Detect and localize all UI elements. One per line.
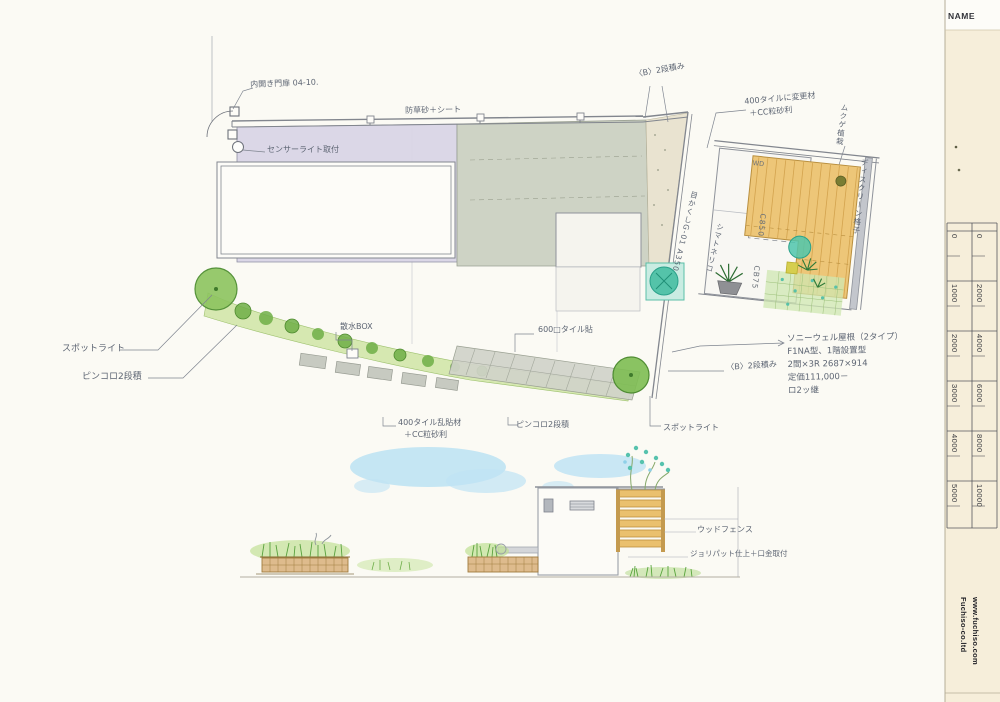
pen-speck [955,146,958,149]
ruler-left-1000: 1000 [950,284,959,303]
tile-600-label: 600□タイル貼 [538,325,593,334]
sensor-light-label: センサーライト取付 [267,145,339,154]
tile-400-label-line2: ＋CC粒砂利 [404,430,447,439]
entry-approach [556,267,640,311]
ruler-left-2000: 2000 [950,334,959,353]
tile-400-label-line1: 400タイル乱貼材 [398,418,461,427]
wood-fence-elevation [616,489,665,552]
ruler-right-2000: 2000 [975,284,984,303]
product-note-line5: ロ2ッ継 [788,383,904,398]
deck-cb75-label: CB75 [749,265,760,290]
water-box-symbol [347,349,358,358]
name-field-label: NAME [948,11,975,21]
gate-light-symbol [233,142,244,153]
company-name-text: Fuchiso-co.ltd [959,597,968,652]
wood-fence-label: ウッドフェンス [697,525,753,534]
tree-symbol-bottom [613,357,649,393]
spotlight-bottom-label: スポットライト [663,423,719,432]
product-note-line1: ソニーウェル屋根（2タイプ） [787,331,903,346]
pinkoro-left-label: ピンコロ2段積 [82,372,142,382]
ruler-right-10000: 10000 [975,484,984,507]
louver-window [570,501,594,510]
left-planter-fragment [250,533,433,574]
deck-wd-label: WD [752,160,764,169]
ruler-right-4000: 4000 [975,334,984,353]
fence-planting [623,446,670,490]
ruler-left-0: 0 [950,234,959,239]
garage-outline-outer [217,162,455,258]
company-url-text: www.fuchiso.com [971,597,980,665]
detail-planting-area [763,270,845,316]
intercom-box [544,499,553,512]
entry-room [556,213,641,267]
pinkoro-bottom-label: ピンコロ2段積 [516,420,569,429]
ruler-right-0: 0 [975,234,984,239]
water-box-label: 散水BOX [340,322,373,331]
detail-yellow-planter [786,262,798,274]
deck-c850-label: C850 [756,213,767,237]
product-note: ソニーウェル屋根（2タイプ） F1NA型、1階設置型 2間×3R 2687×91… [787,331,904,398]
pen-speck [958,169,961,172]
weed-sheet-label: 防草砂＋シート [405,105,461,115]
spotlight-left-label: スポットライト [62,344,125,354]
ruler-left-5000: 5000 [950,484,959,503]
elevation-drawing [240,446,740,579]
ruler-right-8000: 8000 [975,434,984,453]
ruler-left-4000: 4000 [950,434,959,453]
wall-finish-label: ジョリパット仕上＋口金取付 [690,550,788,559]
ruler-left-3000: 3000 [950,384,959,403]
ruler-right-6000: 6000 [975,384,984,403]
center-brick-planter [465,543,538,572]
sky-wash [350,447,646,493]
scanned-garden-plan-sheet: 内開き門扉 04-10. センサーライト取付 防草砂＋シート 〈B〉2段積み ス… [0,0,1000,702]
tree-symbol-left [195,268,237,310]
